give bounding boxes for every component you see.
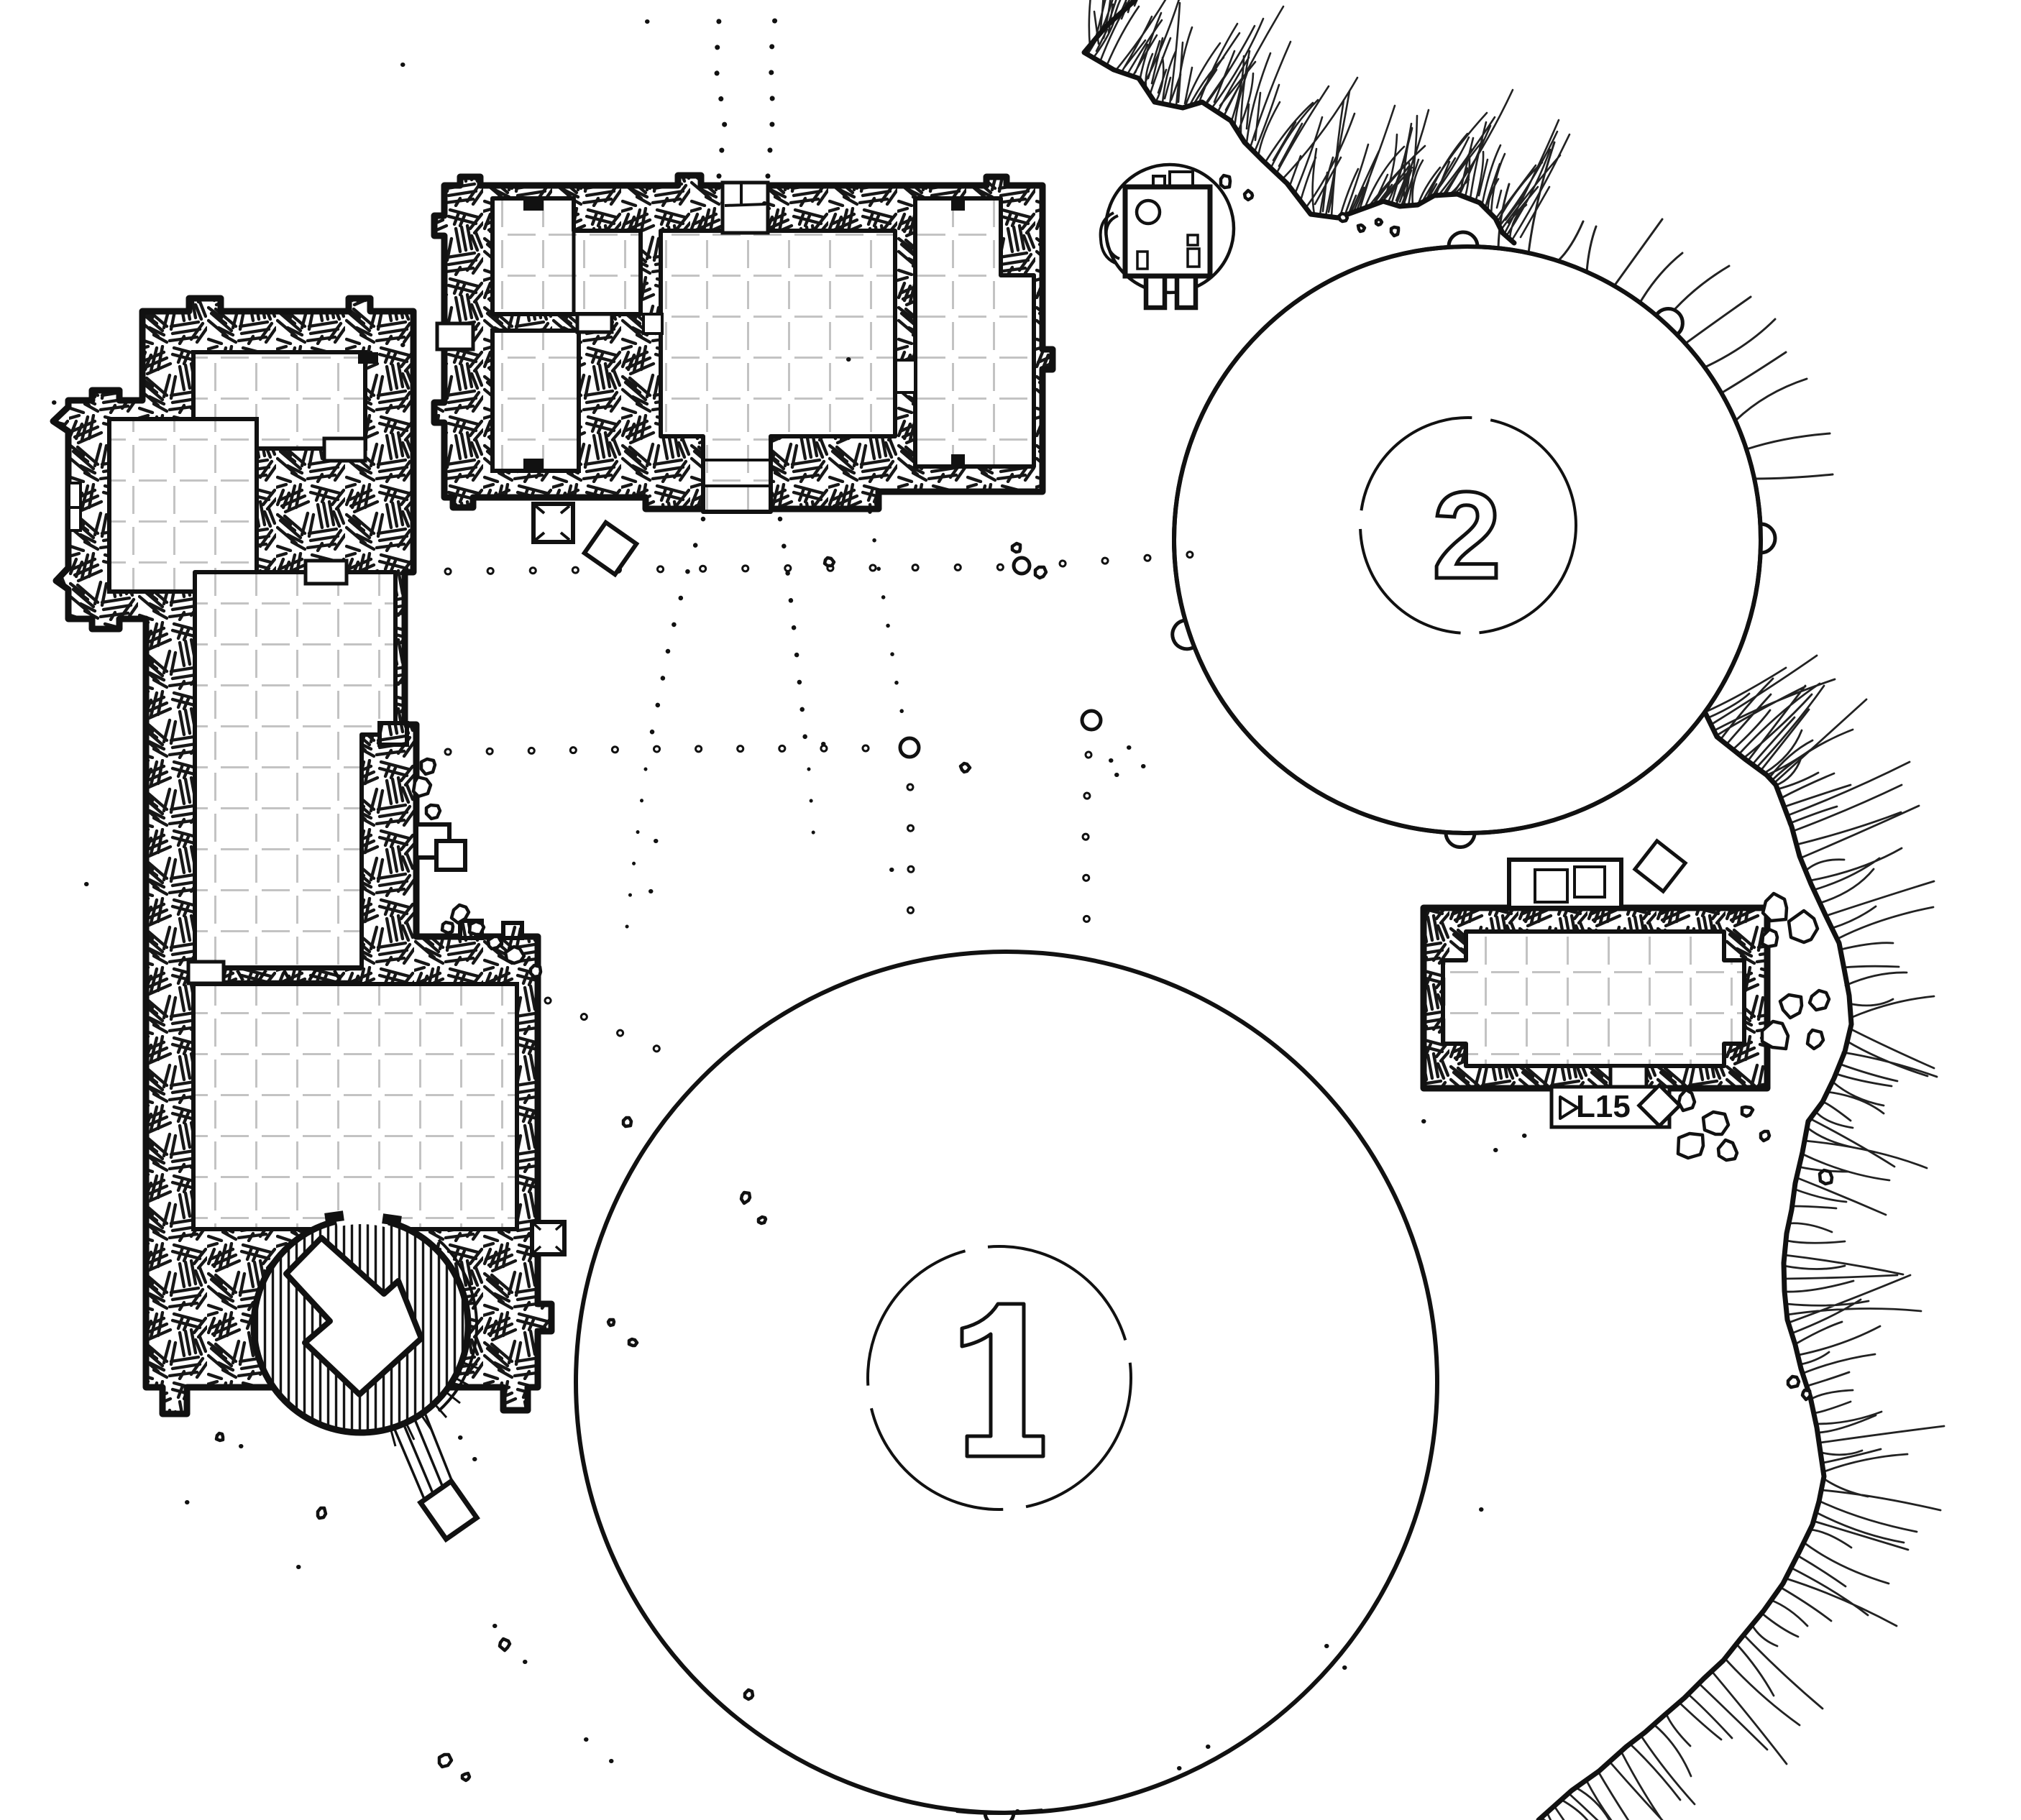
svg-text:L15: L15	[1576, 1089, 1631, 1124]
svg-text:2: 2	[1432, 467, 1501, 605]
